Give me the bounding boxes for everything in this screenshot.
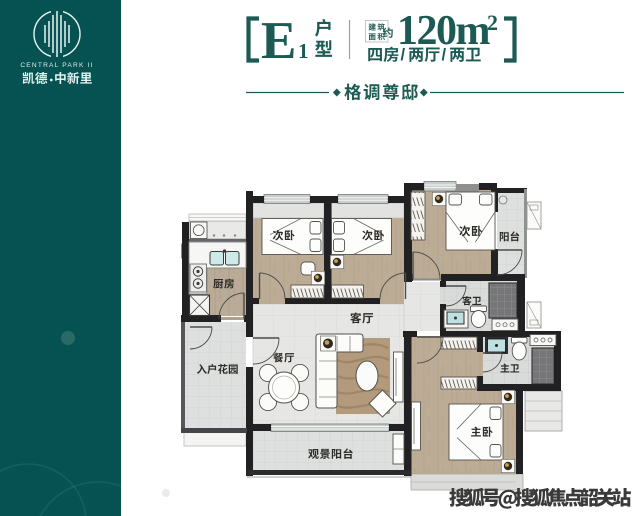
svg-text:/: / [442,46,447,64]
svg-text:CENTRAL PARK II: CENTRAL PARK II [20,62,93,69]
svg-text:/: / [401,46,406,64]
svg-text:1: 1 [298,39,309,63]
svg-text:E: E [261,12,296,70]
svg-text:2: 2 [487,10,498,35]
